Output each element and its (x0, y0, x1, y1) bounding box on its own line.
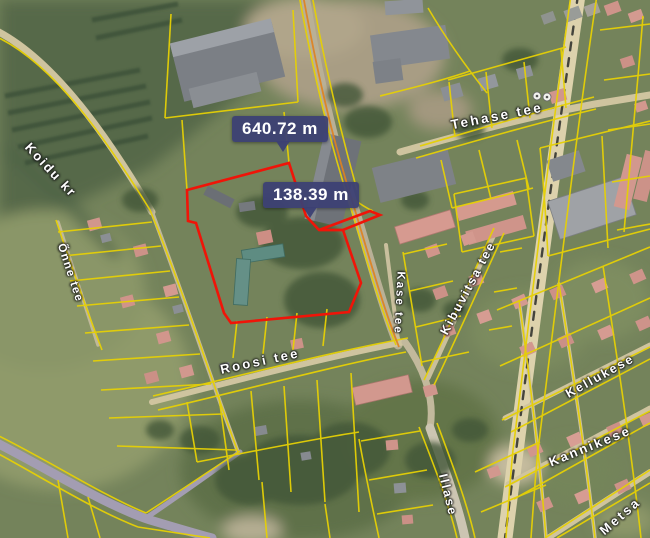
map-canvas[interactable]: Tehase tee Kibuvitsa tee Kase tee Roosi … (0, 0, 650, 538)
measurement-pointer-2 (303, 207, 317, 218)
measurement-badge-2: 138.39 m (263, 182, 359, 208)
measurement-value-1: 640.72 m (232, 116, 328, 142)
measurement-value-2: 138.39 m (263, 182, 359, 208)
measurement-badge-1: 640.72 m (232, 116, 328, 142)
measurement-pointer-1 (276, 141, 290, 152)
